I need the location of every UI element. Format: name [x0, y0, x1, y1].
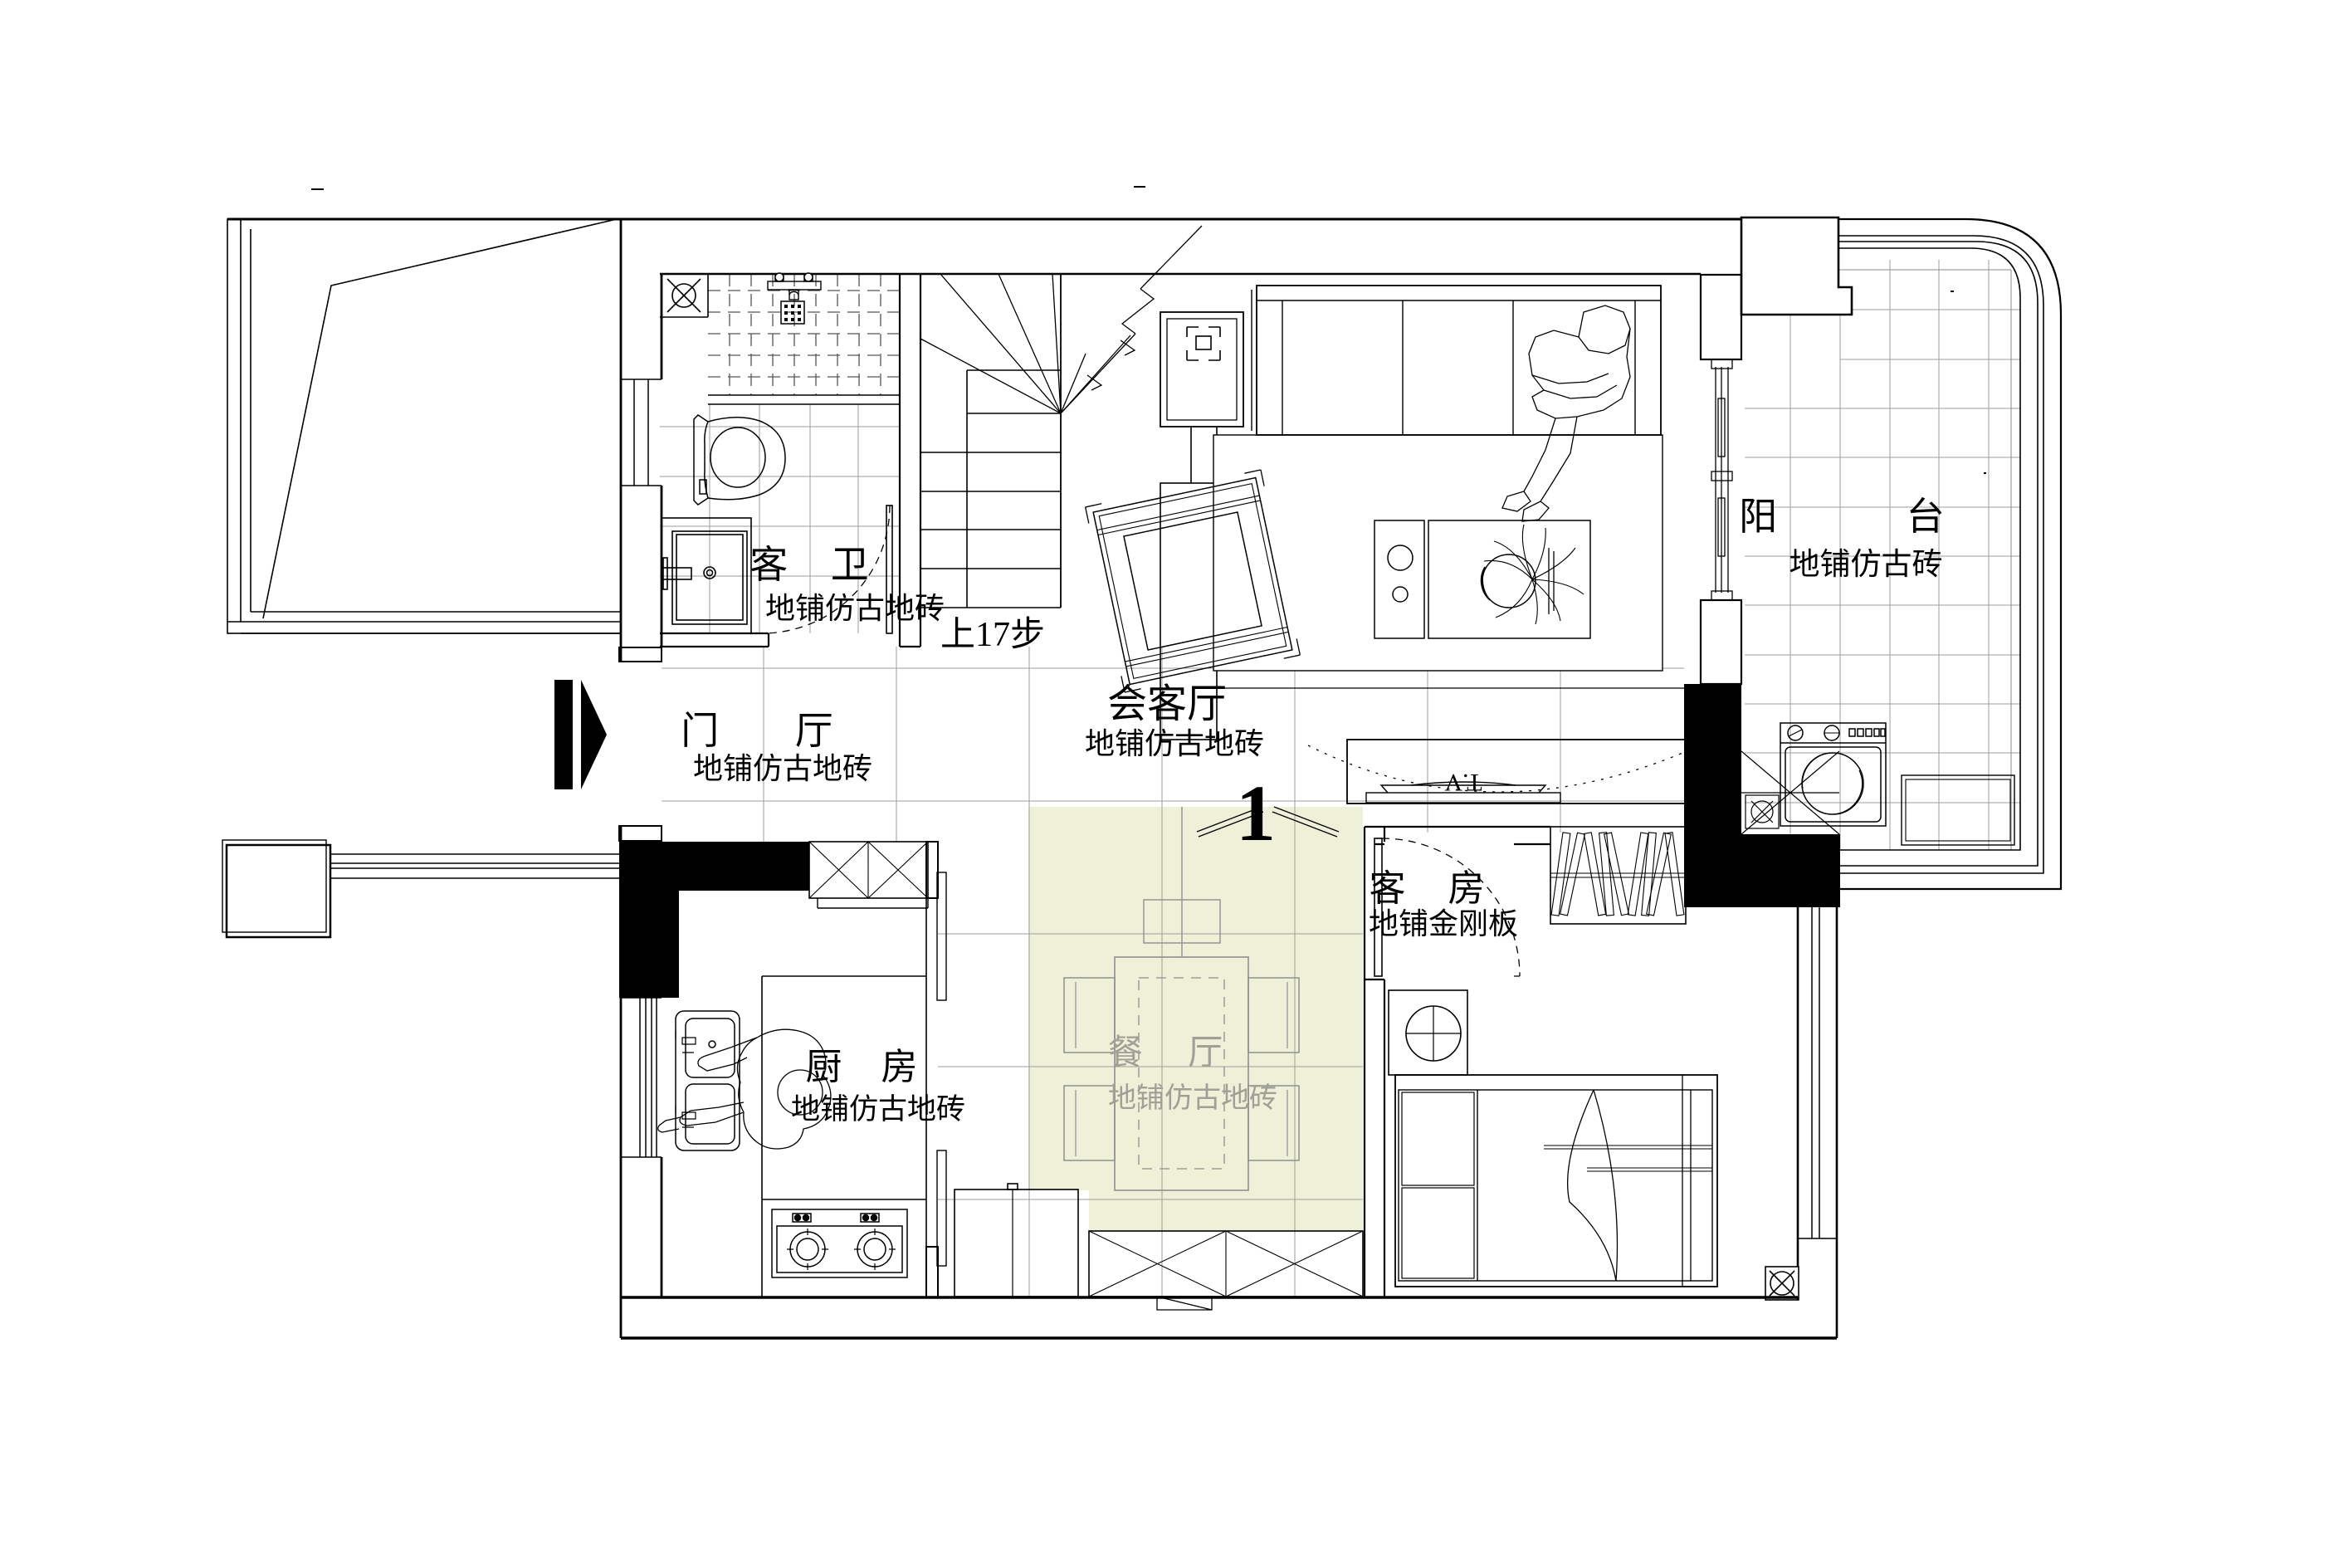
svg-text:餐 厅: 餐 厅: [1108, 1034, 1242, 1072]
svg-text:地铺仿古地砖: 地铺仿古地砖: [765, 592, 945, 625]
svg-text:会客厅: 会客厅: [1107, 682, 1227, 726]
svg-text:地铺仿古砖: 地铺仿古砖: [1789, 547, 1943, 582]
svg-text:门 厅: 门 厅: [681, 710, 867, 752]
svg-text:1: 1: [1236, 769, 1276, 857]
svg-text:地铺仿古地砖: 地铺仿古地砖: [693, 752, 872, 785]
svg-text:地铺仿古地砖: 地铺仿古地砖: [1085, 727, 1264, 760]
svg-text:客 卫: 客 卫: [749, 544, 886, 586]
svg-text:地铺金刚板: 地铺金刚板: [1369, 907, 1518, 940]
svg-text:地铺仿古地砖: 地铺仿古地砖: [791, 1093, 965, 1126]
svg-text:客 房: 客 房: [1370, 868, 1501, 909]
svg-text:T.V: T.V: [1444, 769, 1482, 796]
svg-text:上17步: 上17步: [940, 616, 1045, 654]
svg-text:地铺仿古地砖: 地铺仿古地砖: [1108, 1082, 1277, 1114]
svg-text:厨 房: 厨 房: [806, 1047, 933, 1087]
svg-text:阳 台: 阳 台: [1739, 496, 2004, 538]
